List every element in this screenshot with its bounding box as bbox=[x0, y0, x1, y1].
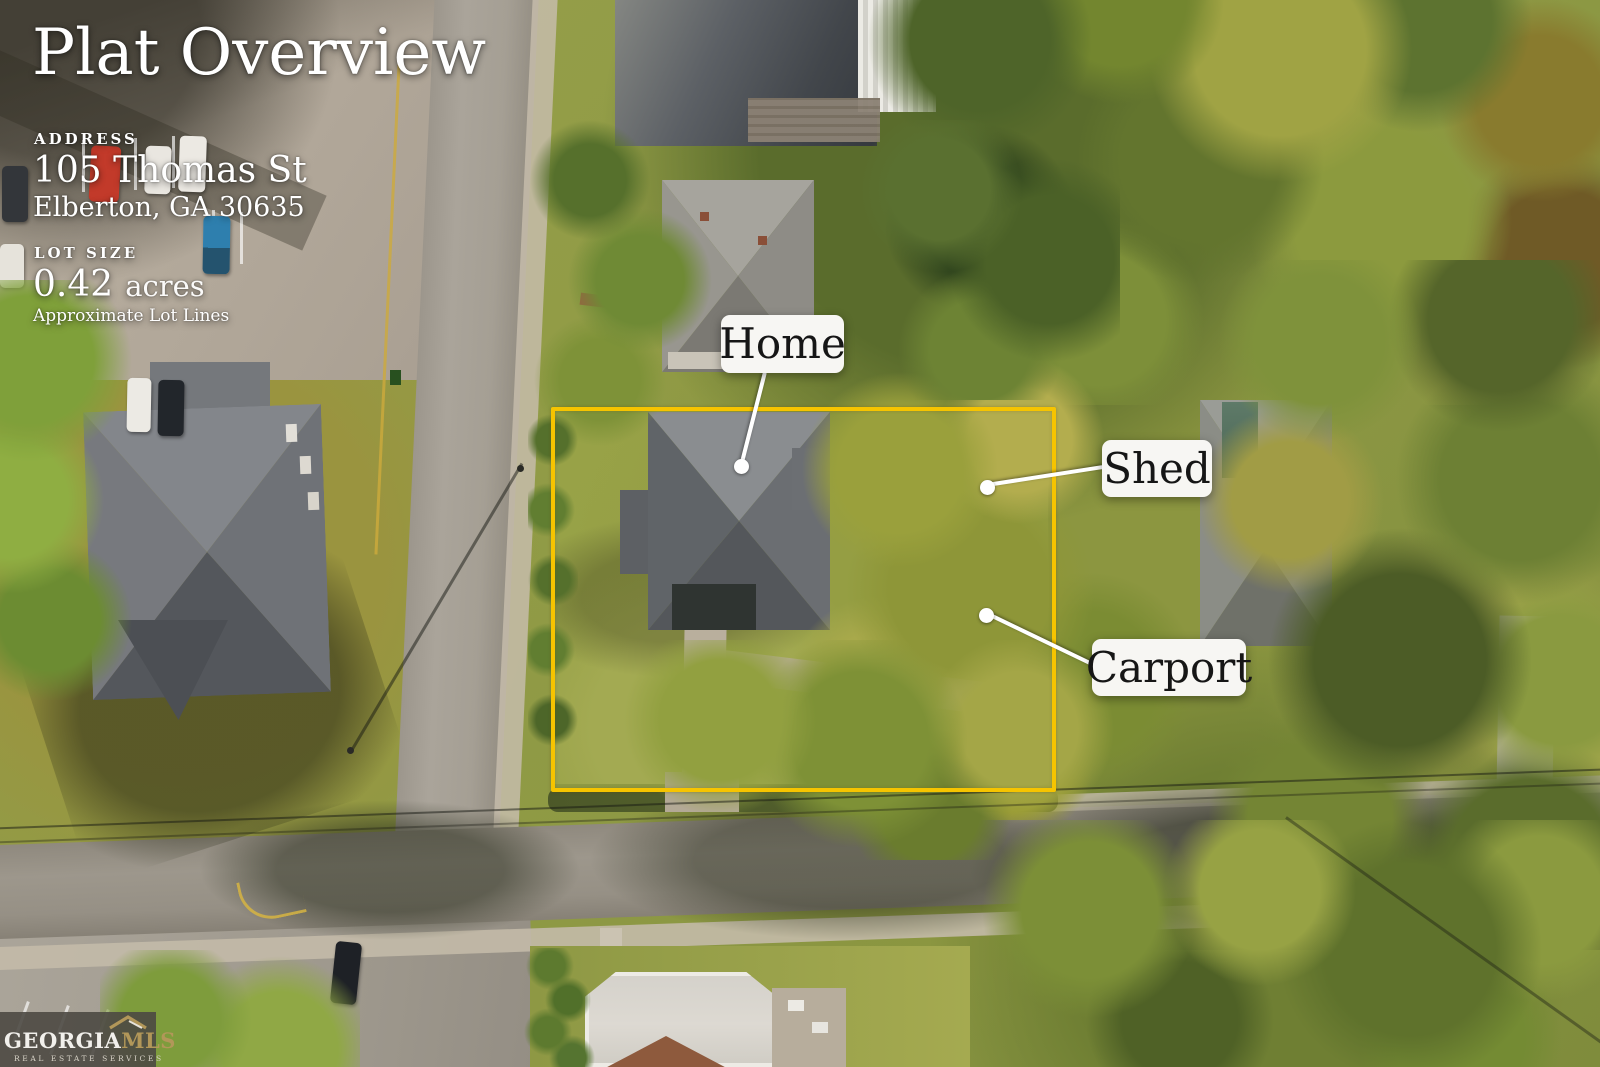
logo-wordmark: GEORGIAMLS bbox=[4, 1028, 176, 1053]
shed-leader-dot bbox=[980, 480, 995, 495]
shed-label-text: Shed bbox=[1103, 448, 1211, 490]
lot-boundary-rectangle bbox=[551, 407, 1056, 792]
victorian-dormer bbox=[300, 456, 312, 474]
car-dark bbox=[2, 166, 28, 222]
home-label: Home bbox=[721, 315, 844, 373]
utility-pole bbox=[517, 465, 524, 472]
home-leader-dot bbox=[734, 459, 749, 474]
lot-size-heading: LOT SIZE bbox=[34, 244, 138, 262]
lot-size-value-row: 0.42 acres bbox=[33, 264, 205, 305]
carport-leader-dot bbox=[979, 608, 994, 623]
address-line1: 105 Thomas St bbox=[33, 150, 307, 191]
page-title: Plat Overview bbox=[32, 18, 486, 88]
address-line2: Elberton, GA 30635 bbox=[33, 192, 305, 223]
lot-size-value: 0.42 bbox=[33, 264, 113, 305]
lot-size-unit: acres bbox=[125, 269, 204, 303]
victorian-dormer bbox=[286, 424, 298, 442]
home-label-text: Home bbox=[719, 323, 846, 365]
tree-canopy-center-right bbox=[860, 120, 1120, 400]
car-dark-suv bbox=[158, 380, 185, 436]
bottom-building-detail bbox=[788, 1000, 804, 1011]
tree-canopy-left bbox=[0, 280, 160, 700]
plat-overview-flyer: Home Shed Carport Plat Overview ADDRESS … bbox=[0, 0, 1600, 1067]
address-heading: ADDRESS bbox=[34, 130, 138, 148]
tree-canopy-bottom-right bbox=[980, 820, 1600, 1067]
utility-pole bbox=[347, 747, 354, 754]
georgiamls-logo: GEORGIAMLS REAL ESTATE SERVICES bbox=[0, 1012, 156, 1067]
carport-label-text: Carport bbox=[1086, 647, 1252, 689]
logo-name: GEORGIA bbox=[4, 1028, 121, 1053]
chimney bbox=[758, 236, 767, 245]
victorian-dormer bbox=[308, 492, 320, 510]
bottom-hedges bbox=[520, 948, 610, 1067]
lot-lines-note: Approximate Lot Lines bbox=[33, 306, 229, 326]
logo-suffix: MLS bbox=[121, 1028, 176, 1053]
shed-label: Shed bbox=[1102, 440, 1212, 497]
bottom-building-wing bbox=[772, 988, 846, 1067]
carport-label: Carport bbox=[1092, 639, 1246, 696]
logo-tagline: REAL ESTATE SERVICES bbox=[14, 1054, 164, 1063]
trash-bin bbox=[390, 370, 401, 385]
bottom-building-detail bbox=[812, 1022, 828, 1033]
truck-blue bbox=[202, 216, 230, 274]
